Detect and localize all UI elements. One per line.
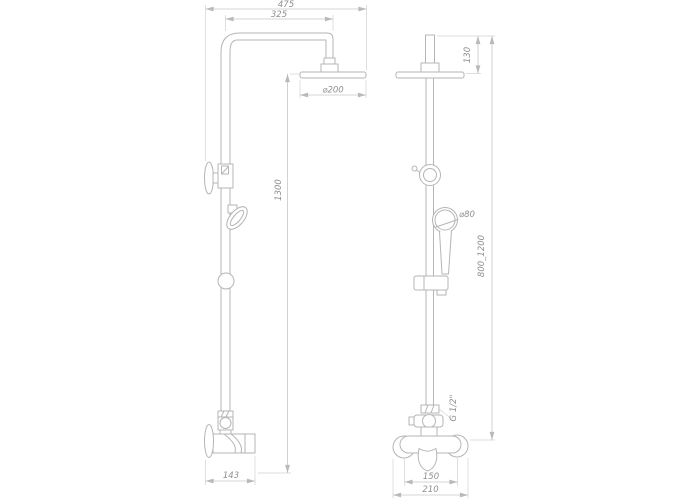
dim-label-475: 475 (278, 0, 294, 10)
dim-label-150: 150 (423, 472, 439, 482)
overhead-connector-nut (321, 64, 338, 72)
dim-label-210: 210 (422, 485, 438, 495)
dim-head-diameter: ⌀200 (300, 80, 366, 98)
dim-label-130: 130 (463, 47, 473, 63)
dim-label-d80: ⌀80 (459, 210, 475, 220)
dim-label-g12: G 1/2" (449, 394, 459, 421)
diverter-ball-front (423, 415, 436, 428)
dim-adjustable-height: 800_1200 (470, 36, 495, 440)
diverter-cap-side (218, 411, 233, 417)
slider-holder (414, 276, 448, 290)
dim-head-offset: 130 (437, 36, 495, 74)
dim-label-325: 325 (271, 10, 287, 20)
column-ball-joint (218, 273, 234, 289)
side-view (205, 33, 367, 458)
dim-arm-reach: 325 (226, 10, 334, 31)
shower-system-drawing: 475 325 ⌀200 1300 143 (0, 0, 700, 500)
overhead-connector-upper (324, 58, 335, 64)
diverter-neck-side (220, 430, 231, 434)
overhead-shower-head-side (300, 72, 366, 78)
dim-label-d200: ⌀200 (322, 86, 343, 96)
diverter-ball-side (220, 418, 231, 429)
dim-label-800-1200: 800_1200 (477, 235, 487, 277)
top-pipe-front (426, 35, 435, 63)
mixer-handle-front (418, 449, 437, 472)
drawing-canvas: 475 325 ⌀200 1300 143 (0, 0, 700, 500)
upper-wall-flange (205, 162, 214, 194)
slider-holder-tab (437, 290, 446, 295)
dim-mixer-depth: 143 (206, 456, 256, 485)
dim-handshower-diameter: ⌀80 (459, 210, 475, 220)
dim-column-height: 1300 (258, 74, 301, 473)
lower-wall-flange-side (205, 425, 214, 458)
shower-column-pipe-inner (230, 40, 326, 411)
dim-label-1300: 1300 (274, 179, 284, 201)
bracket-lever-knob (412, 166, 417, 171)
diverter-neck-front (421, 427, 437, 436)
hand-shower-head-front (433, 208, 458, 233)
thread-connection-nut (421, 405, 439, 413)
diverter-knob-front (409, 417, 414, 425)
dim-label-143: 143 (223, 471, 239, 481)
upper-bracket-front (420, 165, 441, 186)
hand-shower-handle (440, 231, 452, 275)
top-pipe-nut (421, 63, 439, 72)
overhead-shower-head-front (396, 72, 464, 78)
